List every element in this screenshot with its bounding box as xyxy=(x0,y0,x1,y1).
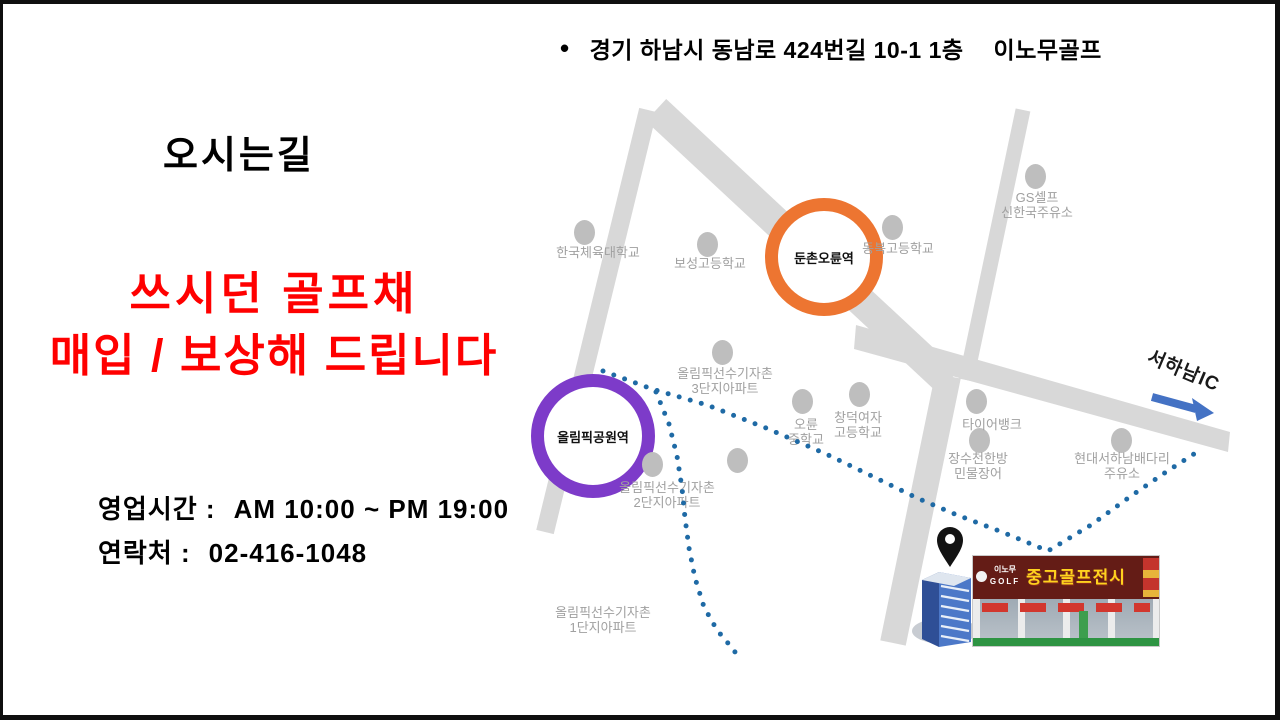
poi-label: 현대서하남배다리 주유소 xyxy=(1074,451,1170,481)
storefront-photo: 이노무 GOLF 중고골프전시장 xyxy=(973,556,1159,646)
ic-arrow-icon xyxy=(1152,397,1214,421)
poi-label: 타이어뱅크 xyxy=(962,417,1022,432)
hours-value: AM 10:00 ~ PM 19:00 xyxy=(234,494,510,524)
business-hours: 영업시간 :AM 10:00 ~ PM 19:00 xyxy=(98,489,509,526)
poi-label: GS셀프 신한국주유소 xyxy=(1001,190,1073,220)
promo-text: 쓰시던 골프채 매입 / 보상해 드립니다 xyxy=(8,266,540,384)
poi-dot xyxy=(712,340,733,365)
storefront-ground-strip xyxy=(973,638,1159,646)
directions-slide: 둔촌오륜역 올림픽공원역 한국체육대학교 보성고등학교 동북고등학교 GS셀프 … xyxy=(0,0,1280,720)
shop-brand: 이노무 GOLF xyxy=(989,564,1021,588)
ic-label: 서하남IC xyxy=(1144,342,1225,397)
road xyxy=(854,325,1230,452)
poi-dot xyxy=(849,382,870,407)
poi-label: 창덕여자 고등학교 xyxy=(834,410,882,440)
poi-label: 동북고등학교 xyxy=(862,241,934,256)
road xyxy=(893,376,948,643)
shop-building-icon xyxy=(912,572,978,647)
poi-label: 장수천한방 민물장어 xyxy=(948,451,1008,481)
hours-label: 영업시간 : xyxy=(98,494,216,524)
bullet-icon: • xyxy=(560,35,570,61)
shop-sign-title: 중고골프전시장 xyxy=(1021,562,1131,599)
poi-dot xyxy=(1025,164,1046,189)
shop-sign: 이노무 GOLF 중고골프전시장 xyxy=(973,556,1159,599)
poi-dot xyxy=(966,389,987,414)
poi-dot xyxy=(574,220,595,245)
promo-line-2: 매입 / 보상해 드립니다 xyxy=(8,328,540,384)
contact-value: 02-416-1048 xyxy=(209,538,367,568)
contact-row: 연락처 :02-416-1048 xyxy=(98,533,367,570)
road xyxy=(966,110,1023,380)
directions-heading: 오시는길 xyxy=(163,124,315,179)
station-ring-dunchon-oryun: 둔촌오륜역 xyxy=(765,198,883,316)
contact-label: 연락처 : xyxy=(98,538,191,568)
shop-sign-side-panels xyxy=(1143,558,1159,597)
poi-label: 오륜 중학교 xyxy=(788,417,824,447)
poi-label: 올림픽선수기자촌 3단지아파트 xyxy=(677,366,773,396)
poi-dot xyxy=(727,448,748,473)
poi-dot xyxy=(882,215,903,240)
shop-logo-icon xyxy=(976,571,987,582)
route-dotted-branch xyxy=(656,392,741,660)
slide-border-top xyxy=(0,0,1280,4)
location-pin-icon xyxy=(937,527,963,567)
poi-dot xyxy=(792,389,813,414)
address-line: • 경기 하남시 동남로 424번길 10-1 1층 이노무골프 xyxy=(560,31,1102,65)
poi-label: 올림픽선수기자촌 1단지아파트 xyxy=(555,605,651,635)
station-label: 둔촌오륜역 xyxy=(794,248,854,267)
poi-dot xyxy=(697,232,718,257)
slide-border-left xyxy=(0,0,3,720)
slide-border-right xyxy=(1275,0,1280,720)
storefront-green-banner xyxy=(1079,611,1088,640)
poi-label: 올림픽선수기자촌 2단지아파트 xyxy=(619,480,715,510)
address-text: 경기 하남시 동남로 424번길 10-1 1층 xyxy=(590,31,964,65)
poi-label: 한국체육대학교 xyxy=(556,245,640,260)
poi-dot xyxy=(642,452,663,477)
poi-dot xyxy=(1111,428,1132,453)
shop-storefront xyxy=(973,599,1159,646)
station-label: 올림픽공원역 xyxy=(557,427,629,446)
storefront-window-banners xyxy=(982,603,1150,612)
poi-label: 보성고등학교 xyxy=(674,256,746,271)
address-brand: 이노무골프 xyxy=(994,31,1102,65)
promo-line-1: 쓰시던 골프채 xyxy=(8,266,540,322)
slide-border-bottom xyxy=(0,715,1280,720)
